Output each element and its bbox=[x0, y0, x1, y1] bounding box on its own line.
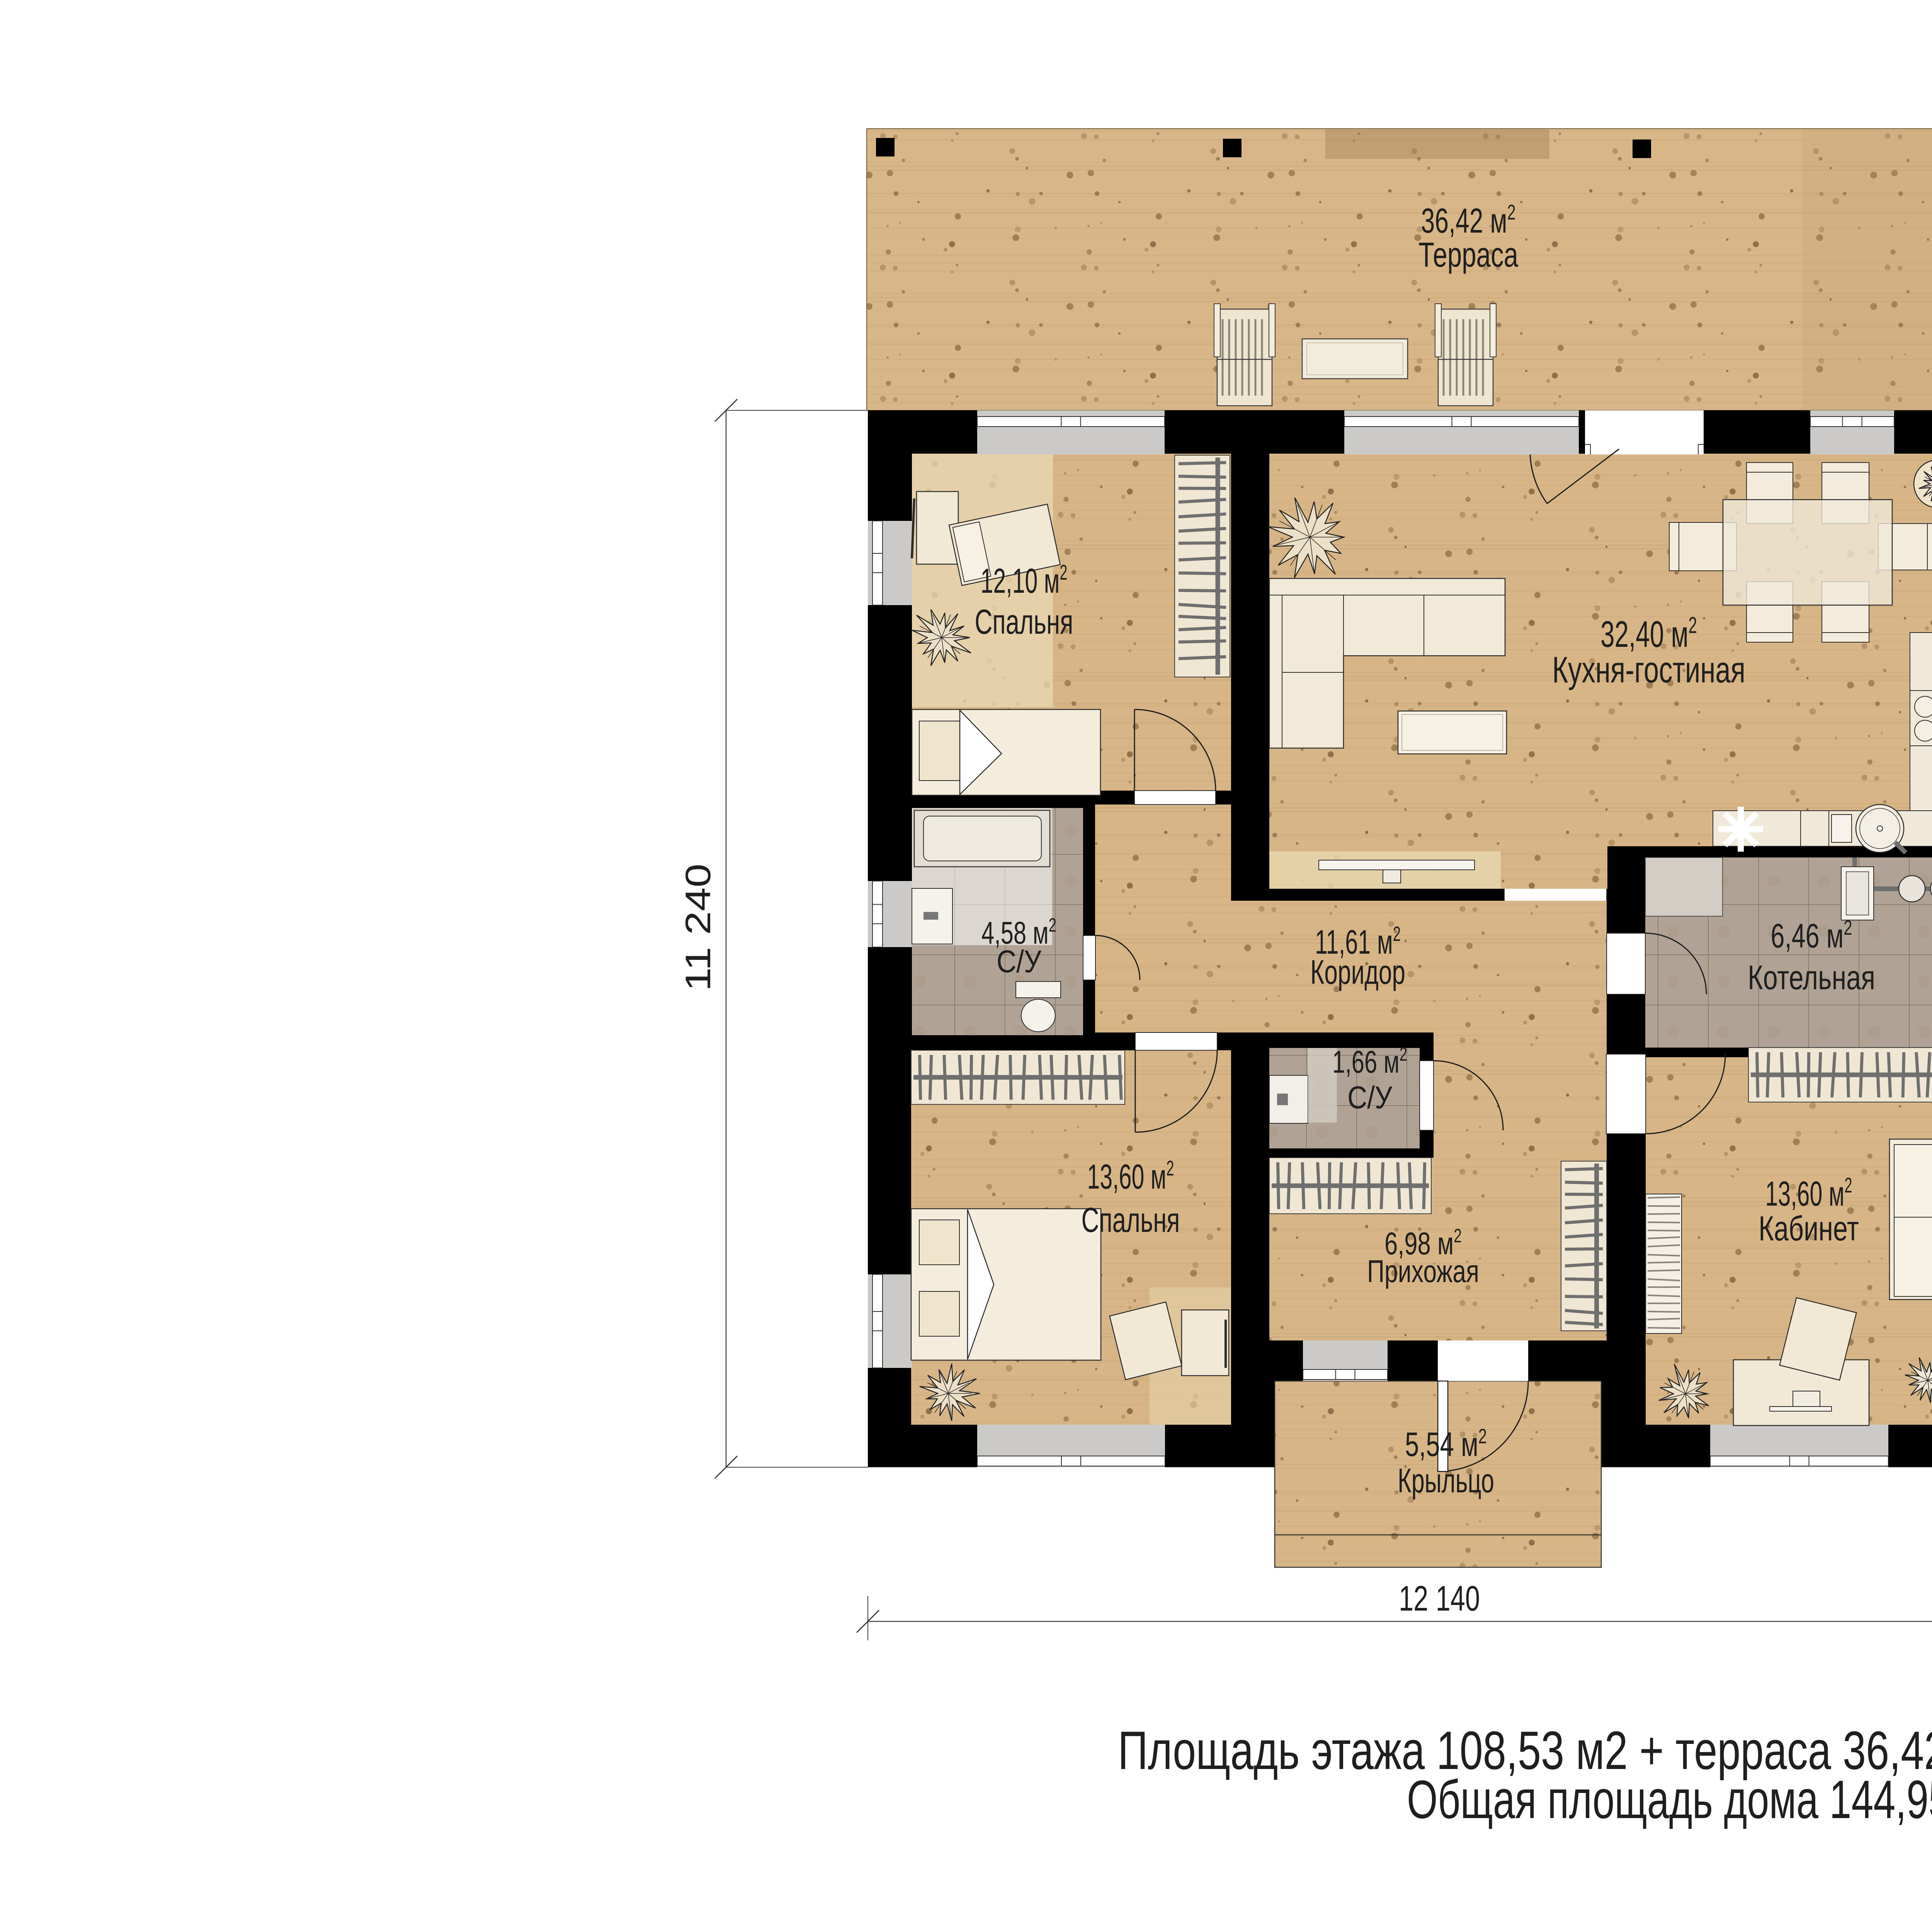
svg-text:12,10 м2: 12,10 м2 bbox=[981, 560, 1068, 600]
svg-text:Котельная: Котельная bbox=[1748, 958, 1875, 997]
svg-text:Крыльцо: Крыльцо bbox=[1398, 1461, 1494, 1500]
svg-text:36,42 м2: 36,42 м2 bbox=[1421, 200, 1516, 240]
svg-text:Спальня: Спальня bbox=[1082, 1201, 1180, 1240]
svg-text:Прихожая: Прихожая bbox=[1367, 1254, 1479, 1289]
svg-text:Кабинет: Кабинет bbox=[1759, 1209, 1859, 1248]
svg-text:11 240: 11 240 bbox=[679, 864, 718, 991]
svg-text:6,46 м2: 6,46 м2 bbox=[1771, 916, 1852, 955]
svg-text:Кухня-гостиная: Кухня-гостиная bbox=[1552, 649, 1745, 691]
svg-text:12 140: 12 140 bbox=[1399, 1579, 1480, 1618]
svg-text:Терраса: Терраса bbox=[1418, 236, 1519, 274]
svg-text:13,60 м2: 13,60 м2 bbox=[1765, 1173, 1852, 1213]
svg-text:С/У: С/У bbox=[997, 944, 1042, 979]
svg-text:С/У: С/У bbox=[1347, 1080, 1393, 1115]
svg-text:32,40 м2: 32,40 м2 bbox=[1600, 612, 1697, 655]
svg-text:Общая площадь дома 144,95 м2: Общая площадь дома 144,95 м2 bbox=[1407, 1769, 1932, 1830]
svg-text:13,60 м2: 13,60 м2 bbox=[1087, 1156, 1174, 1196]
svg-text:Спальня: Спальня bbox=[975, 603, 1073, 641]
svg-text:1,66 м2: 1,66 м2 bbox=[1332, 1043, 1407, 1080]
svg-text:5,54 м2: 5,54 м2 bbox=[1405, 1425, 1487, 1463]
svg-text:Коридор: Коридор bbox=[1310, 953, 1405, 991]
